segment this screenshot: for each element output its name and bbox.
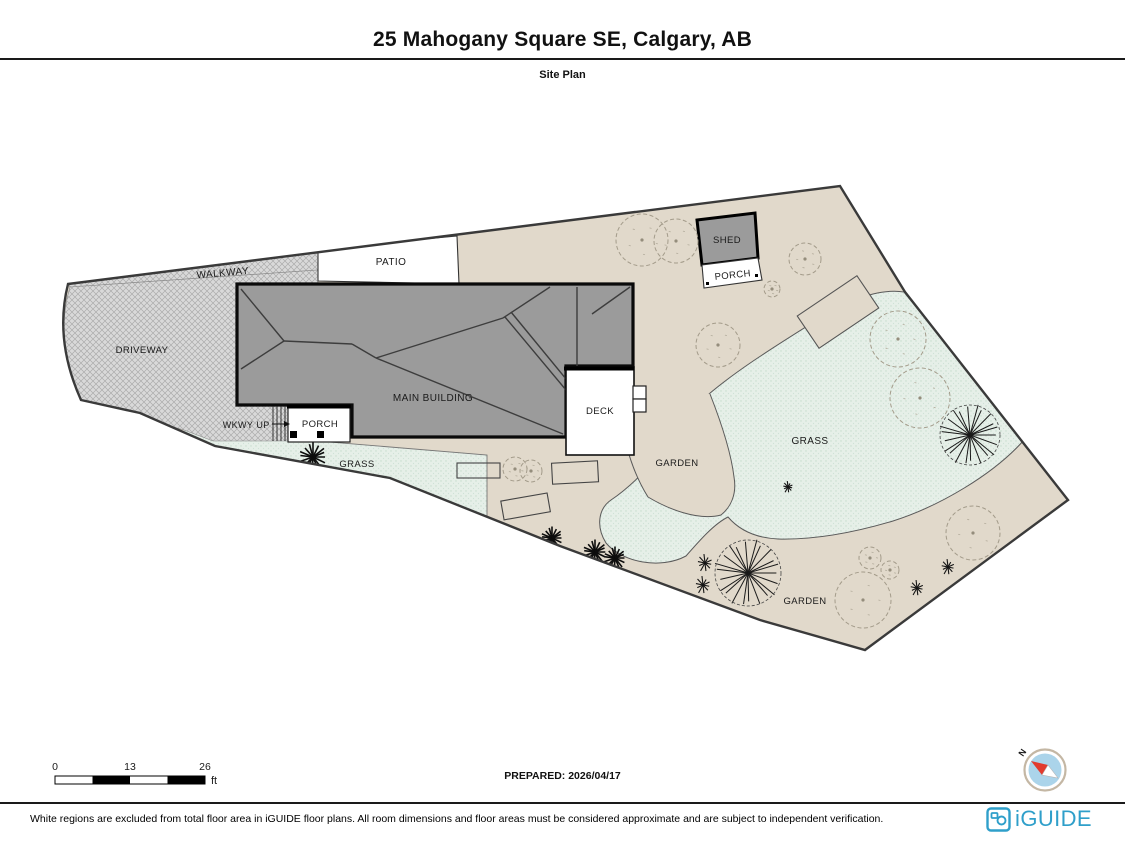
compass-north-label: N <box>1016 747 1028 758</box>
label-garden-mid: GARDEN <box>655 458 698 469</box>
deck-step <box>633 399 646 412</box>
label-grass-left: GRASS <box>339 459 374 470</box>
label-main-building: MAIN BUILDING <box>393 393 473 404</box>
iguide-logo: iGUIDE <box>986 806 1092 832</box>
prepared-date: PREPARED: 2026/04/17 <box>0 770 1125 782</box>
label-porch-main: PORCH <box>302 419 338 430</box>
porch-post <box>290 431 297 438</box>
label-patio: PATIO <box>376 257 407 268</box>
site-plan-drawing: DRIVEWAY WALKWAY PATIO MAIN BUILDING WKW… <box>0 0 1125 853</box>
porch-post <box>317 431 324 438</box>
compass-icon: N <box>1016 747 1065 790</box>
label-grass-right: GRASS <box>791 436 828 447</box>
footer-divider <box>0 802 1125 804</box>
shed-porch-post <box>755 274 758 277</box>
iguide-logo-text: iGUIDE <box>1015 806 1092 832</box>
label-garden-bottom: GARDEN <box>783 596 826 607</box>
label-driveway: DRIVEWAY <box>116 345 169 356</box>
label-up: UP <box>256 420 269 430</box>
iguide-camera-icon <box>986 807 1011 832</box>
label-shed: SHED <box>713 235 741 246</box>
deck-step <box>633 386 646 399</box>
disclaimer-text: White regions are excluded from total fl… <box>30 813 883 825</box>
site-plan-page: 25 Mahogany Square SE, Calgary, AB Site … <box>0 0 1125 853</box>
shed-porch-post <box>706 282 709 285</box>
label-wkwy: WKWY <box>223 420 254 430</box>
label-deck: DECK <box>586 406 614 417</box>
